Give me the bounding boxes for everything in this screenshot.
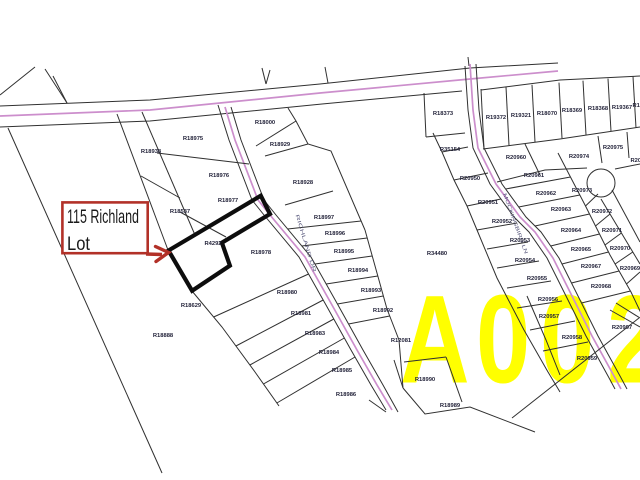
svg-text:R18995: R18995: [334, 249, 355, 255]
svg-text:R20967: R20967: [581, 264, 601, 270]
svg-text:R18000: R18000: [255, 120, 275, 126]
svg-text:R18990: R18990: [415, 377, 435, 383]
svg-text:R19372: R19372: [486, 115, 506, 121]
svg-text:R20963: R20963: [551, 207, 572, 213]
svg-text:R18888: R18888: [153, 333, 174, 339]
svg-text:R19367: R19367: [612, 105, 632, 111]
svg-text:R20997: R20997: [612, 325, 632, 331]
svg-text:R18983: R18983: [305, 331, 326, 337]
svg-text:R18938: R18938: [141, 149, 162, 155]
svg-text:R18369: R18369: [562, 108, 583, 114]
svg-text:R4292: R4292: [204, 241, 221, 247]
svg-text:R20959: R20959: [577, 356, 598, 362]
svg-text:R18629: R18629: [181, 303, 202, 309]
svg-text:R18993: R18993: [361, 288, 382, 294]
svg-text:R18928: R18928: [293, 180, 314, 186]
svg-text:R35154: R35154: [440, 147, 461, 153]
svg-text:115 Richland: 115 Richland: [67, 206, 139, 228]
svg-text:R20964: R20964: [561, 228, 582, 234]
svg-text:R18994: R18994: [348, 268, 369, 274]
svg-text:R20960: R20960: [506, 155, 526, 161]
svg-text:R18985: R18985: [332, 368, 353, 374]
svg-text:R18992: R18992: [373, 308, 393, 314]
svg-text:R18975: R18975: [183, 136, 204, 142]
svg-text:R20952: R20952: [492, 219, 512, 225]
svg-text:R20968: R20968: [591, 284, 612, 290]
svg-text:R18070: R18070: [537, 111, 557, 117]
svg-text:R18980: R18980: [277, 290, 297, 296]
svg-text:R20965: R20965: [571, 247, 592, 253]
svg-text:R20962: R20962: [536, 191, 556, 197]
svg-text:R18984: R18984: [319, 350, 340, 356]
svg-text:R20971: R20971: [602, 228, 623, 234]
svg-text:R12081: R12081: [391, 338, 412, 344]
svg-text:R19321: R19321: [511, 113, 532, 119]
svg-text:Lot: Lot: [67, 233, 90, 255]
svg-text:R20961: R20961: [524, 173, 545, 179]
svg-text:R18537: R18537: [170, 209, 190, 215]
svg-text:R2097: R2097: [630, 158, 640, 164]
svg-text:R18986: R18986: [336, 392, 357, 398]
svg-text:R20973: R20973: [572, 188, 593, 194]
svg-text:R20974: R20974: [569, 154, 590, 160]
svg-text:R20957: R20957: [539, 314, 559, 320]
svg-text:R18997: R18997: [314, 215, 334, 221]
svg-text:R20956: R20956: [538, 297, 559, 303]
svg-text:R18978: R18978: [251, 250, 272, 256]
svg-text:R1936: R1936: [632, 103, 640, 109]
svg-text:R20975: R20975: [603, 145, 624, 151]
svg-text:R20972: R20972: [592, 209, 612, 215]
svg-text:R20950: R20950: [460, 176, 480, 182]
svg-text:R20951: R20951: [478, 200, 499, 206]
svg-text:R20969: R20969: [620, 266, 640, 272]
svg-text:R20958: R20958: [562, 335, 583, 341]
svg-text:R20954: R20954: [515, 258, 536, 264]
svg-text:R18373: R18373: [433, 111, 454, 117]
svg-text:R18996: R18996: [325, 231, 346, 237]
svg-text:R18929: R18929: [270, 142, 291, 148]
svg-text:R18976: R18976: [209, 173, 230, 179]
svg-text:R18977: R18977: [218, 198, 238, 204]
svg-text:R18981: R18981: [291, 311, 312, 317]
svg-text:R18989: R18989: [440, 403, 461, 409]
svg-text:R34480: R34480: [427, 251, 447, 257]
svg-text:R18368: R18368: [588, 106, 609, 112]
svg-text:R20970: R20970: [610, 246, 630, 252]
svg-text:R20953: R20953: [510, 238, 531, 244]
svg-text:R20955: R20955: [527, 276, 548, 282]
